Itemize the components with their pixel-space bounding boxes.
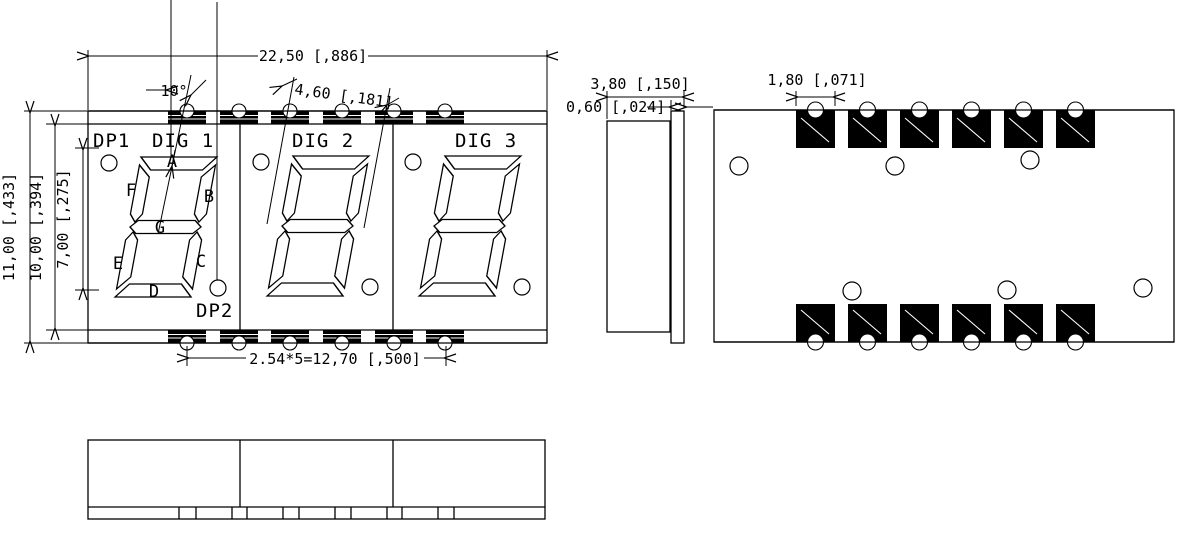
- dim-digit-height-text: 7,00 [,275]: [54, 169, 72, 268]
- dig2-label: DIG 2: [292, 130, 354, 152]
- dim-total-thickness-text: 3,80 [,150]: [590, 75, 689, 93]
- back-top-pads: [714, 102, 1174, 148]
- dim-pad-pitch: 2.54*5=12,70 [,500]: [187, 346, 446, 368]
- dim-overall-height-text: 11,00 [,433]: [0, 173, 18, 281]
- front-bottom-pads: [88, 330, 547, 350]
- bottom-pad-marks: [179, 507, 454, 519]
- dp1-label: DP1: [93, 130, 130, 152]
- dim-pcb-thickness-text: 0,60 [,024]: [566, 98, 665, 116]
- dim-pad-width-text: 1,80 [,071]: [767, 71, 866, 89]
- back-holes: [730, 151, 1152, 300]
- segment-f-label: F: [126, 181, 136, 201]
- dim-pad-pitch-text: 2.54*5=12,70 [,500]: [249, 350, 421, 368]
- digit-3: [405, 154, 530, 296]
- side-view: 3,80 [,150] 0,60 [,024]: [566, 75, 713, 343]
- front-top-pads: [88, 104, 547, 124]
- dim-overall-width-text: 22,50 [,886]: [259, 47, 367, 65]
- dim-slant-angle-text: 10°: [160, 82, 187, 100]
- segment-b-label: B: [204, 187, 214, 207]
- digit-2: [253, 154, 378, 296]
- back-bottom-pads: [714, 304, 1174, 350]
- dim-pad-width: 1,80 [,071]: [767, 71, 866, 106]
- bottom-view: [88, 440, 545, 519]
- segment-d-label: D: [149, 282, 159, 302]
- back-outline: [714, 110, 1174, 342]
- dim-slant-angle: 10°: [146, 80, 206, 100]
- side-pcb-outline: [671, 111, 684, 343]
- segment-e-label: E: [113, 254, 123, 274]
- dig3-label: DIG 3: [455, 130, 517, 152]
- dp2-label: DP2: [196, 300, 233, 322]
- segment-c-label: C: [196, 252, 206, 272]
- dim-body-height-text: 10,00 [,394]: [27, 173, 45, 281]
- dim-left-stack: 11,00 [,433] 10,00 [,394] 7,00 [,275]: [0, 111, 99, 343]
- back-view: 1,80 [,071]: [714, 71, 1174, 350]
- side-body-outline: [607, 121, 670, 332]
- segment-g-label: G: [155, 218, 165, 238]
- dim-pcb-thickness: 0,60 [,024]: [566, 98, 713, 116]
- segment-a-label: A: [167, 152, 177, 172]
- technical-drawing-page: 22,50 [,886] 10° 4,60 [,181] 11,00 [,433…: [0, 0, 1188, 534]
- dig1-label: DIG 1: [152, 130, 214, 152]
- drawing-canvas: 22,50 [,886] 10° 4,60 [,181] 11,00 [,433…: [0, 0, 1188, 534]
